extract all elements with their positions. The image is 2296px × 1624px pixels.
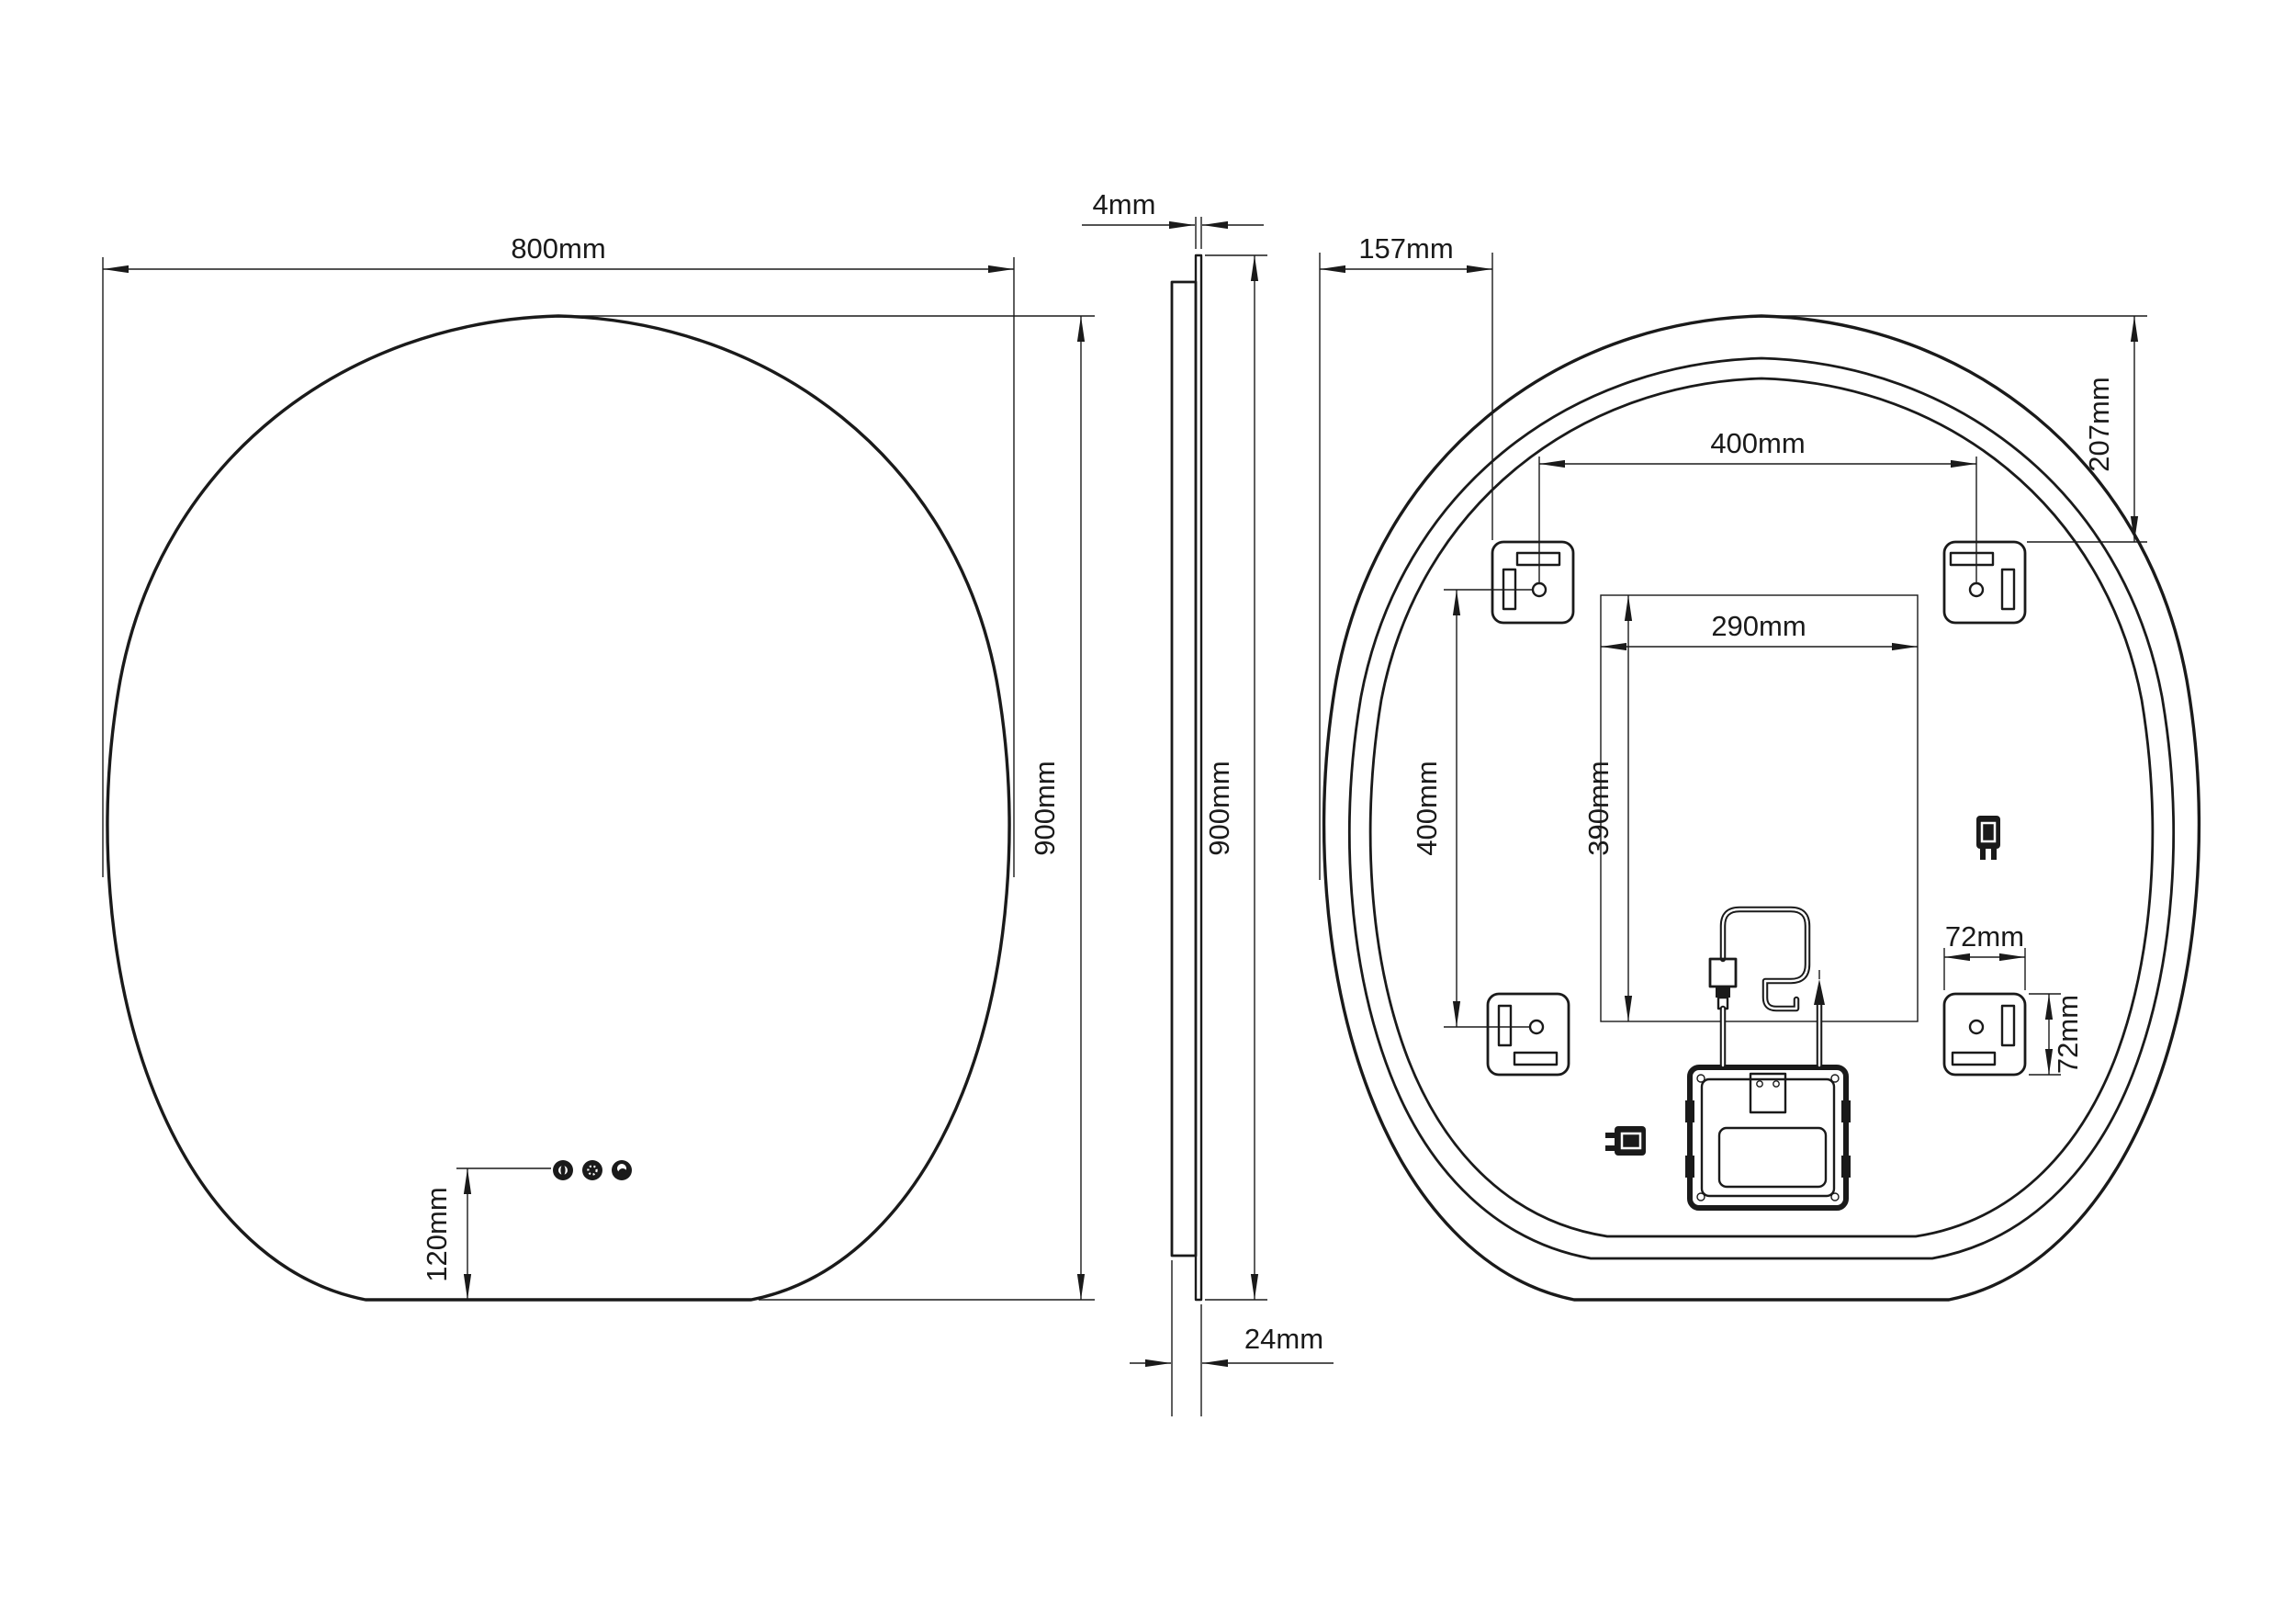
dim-glass-thickness: 4mm	[1082, 188, 1264, 249]
clearance-width-label: 290mm	[1711, 610, 1806, 642]
clearance-height-label: 390mm	[1582, 761, 1615, 855]
mounting-bracket-top-left	[1492, 542, 1573, 623]
dim-clearance-height: 390mm	[1582, 595, 1628, 1021]
side-view: 4mm 900mm 24mm	[1082, 188, 1334, 1416]
power-button-icon	[553, 1160, 573, 1180]
sensor-wire	[1814, 970, 1825, 1066]
front-height-label: 900mm	[1029, 761, 1061, 855]
dim-bracket-height: 72mm	[2029, 994, 2084, 1075]
technical-drawing-page: 800mm 900mm	[0, 0, 2296, 1624]
dim-bracket-width: 72mm	[1944, 920, 2025, 990]
front-view: 800mm 900mm	[103, 232, 1095, 1300]
bracket-spacing-horizontal-label: 400mm	[1710, 427, 1805, 459]
mirror-glass-profile	[1196, 255, 1201, 1300]
mounting-bracket-bottom-left	[1488, 994, 1569, 1075]
dim-side-height: 900mm	[1203, 255, 1267, 1300]
dim-clearance-width: 290mm	[1601, 610, 1918, 647]
dim-back-top-offset: 207mm	[1761, 316, 2147, 542]
backing-panel-profile	[1172, 282, 1196, 1256]
bracket-width-label: 72mm	[1945, 920, 2024, 953]
button-offset-label: 120mm	[421, 1187, 453, 1281]
dim-front-height: 900mm	[562, 316, 1095, 1300]
connector-icon-horizontal	[1605, 1126, 1646, 1156]
mounting-bracket-bottom-right	[1944, 994, 2025, 1075]
bracket-height-label: 72mm	[2052, 995, 2084, 1074]
side-depth-label: 24mm	[1244, 1323, 1323, 1355]
moon-button-icon	[612, 1160, 632, 1180]
wall-clearance-rect	[1601, 595, 1918, 1021]
back-side-offset-label: 157mm	[1358, 232, 1453, 265]
connector-icon-vertical	[1976, 816, 2000, 860]
dim-bracket-spacing-vertical: 400mm	[1411, 590, 1532, 1027]
mounting-bracket-top-right	[1944, 542, 2025, 623]
front-width-label: 800mm	[511, 232, 605, 265]
mirror-technical-drawing: 800mm 900mm	[0, 0, 2296, 1624]
back-view: 157mm 207mm 400mm 400mm 290mm	[1320, 232, 2199, 1300]
glass-thickness-label: 4mm	[1093, 188, 1156, 220]
mirror-front-outline	[107, 316, 1009, 1300]
dimmer-button-icon	[582, 1160, 602, 1180]
dim-button-offset: 120mm	[421, 1168, 551, 1300]
bracket-spacing-vertical-label: 400mm	[1411, 761, 1443, 855]
dim-front-width: 800mm	[103, 232, 1014, 877]
side-height-label: 900mm	[1203, 761, 1235, 855]
plug-icon	[1710, 959, 1736, 1009]
dim-bracket-spacing-horizontal: 400mm	[1539, 427, 1976, 582]
junction-box	[1685, 1067, 1851, 1208]
dim-side-depth: 24mm	[1130, 1260, 1334, 1416]
back-top-offset-label: 207mm	[2083, 377, 2115, 471]
touch-buttons	[553, 1160, 632, 1180]
dim-back-side-offset: 157mm	[1320, 232, 1492, 880]
power-cable-coil-icon	[1710, 909, 1807, 1066]
